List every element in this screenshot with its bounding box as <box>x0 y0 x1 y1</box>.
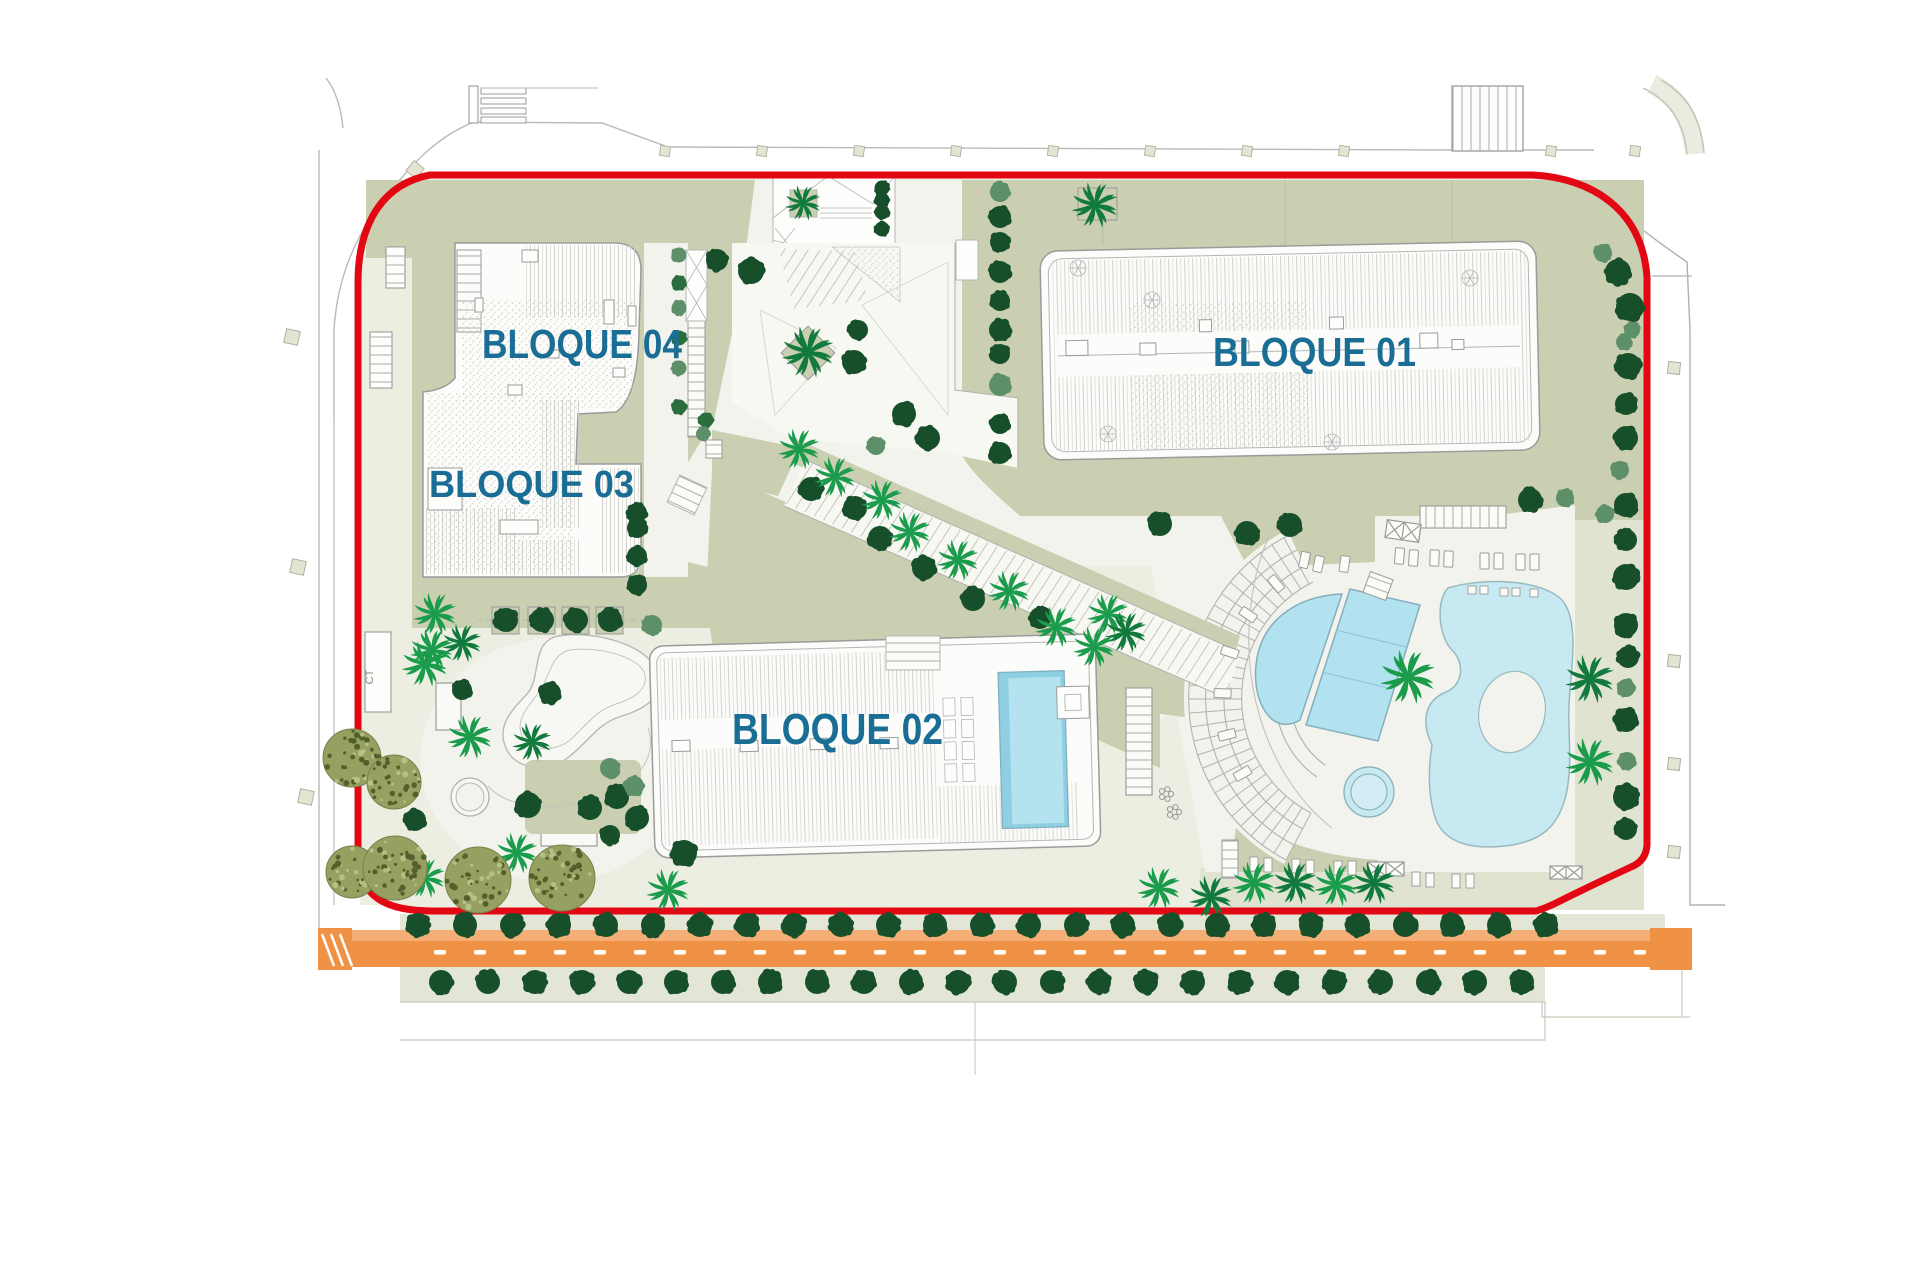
svg-text:BLOQUE 04: BLOQUE 04 <box>482 321 682 367</box>
svg-text:CT: CT <box>364 669 376 684</box>
svg-text:BLOQUE 03: BLOQUE 03 <box>429 464 634 506</box>
svg-text:BLOQUE 01: BLOQUE 01 <box>1213 329 1416 375</box>
svg-text:BLOQUE 02: BLOQUE 02 <box>732 705 943 754</box>
